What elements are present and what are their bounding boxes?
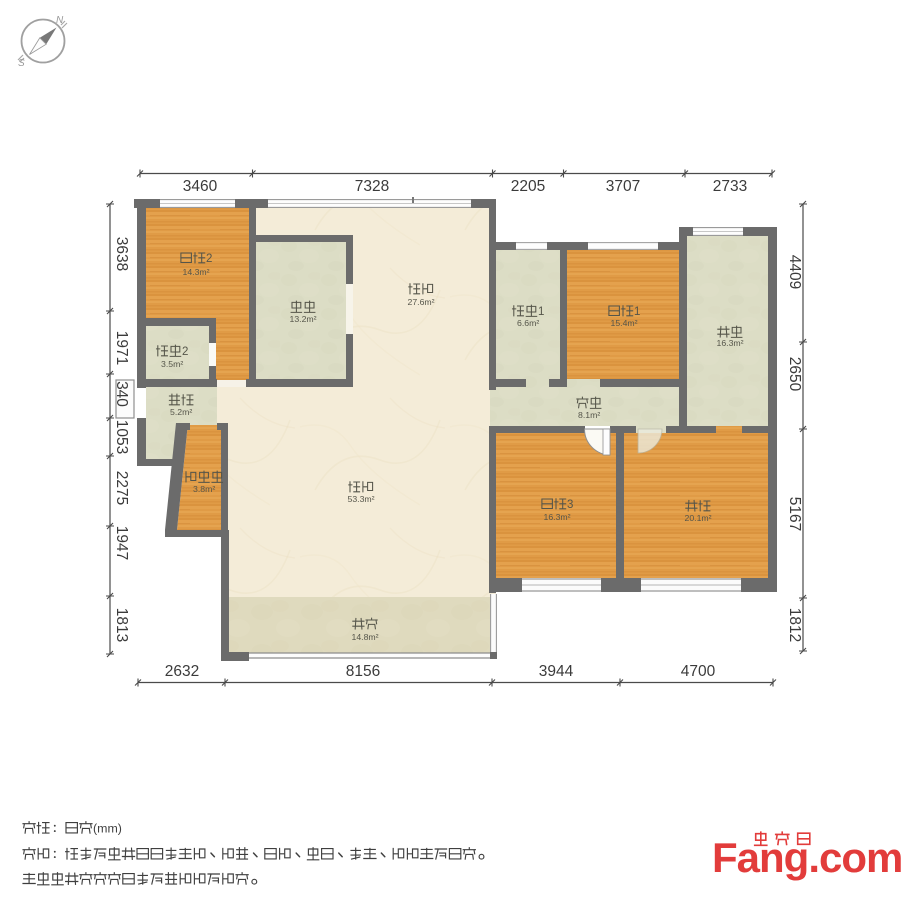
svg-text:15.4m²: 15.4m² [611, 318, 638, 328]
svg-text:1971: 1971 [113, 331, 130, 365]
svg-text:27.6m²: 27.6m² [408, 297, 435, 307]
svg-text:1: 1 [634, 306, 640, 318]
svg-text:2733: 2733 [713, 178, 747, 195]
svg-text:340: 340 [113, 381, 130, 407]
svg-text:1812: 1812 [786, 608, 803, 642]
svg-text:Fang.com: Fang.com [712, 834, 902, 881]
svg-text:1947: 1947 [113, 526, 130, 560]
svg-text:2650: 2650 [786, 357, 803, 392]
svg-text:7328: 7328 [355, 178, 389, 195]
svg-text:14.3m²: 14.3m² [183, 267, 210, 277]
svg-text:2: 2 [206, 253, 212, 265]
svg-text:2205: 2205 [511, 178, 545, 195]
svg-text:3.8m²: 3.8m² [193, 484, 215, 494]
svg-text:6.6m²: 6.6m² [517, 318, 539, 328]
svg-text:1053: 1053 [113, 420, 130, 454]
svg-text:1813: 1813 [113, 608, 130, 642]
svg-text:14.8m²: 14.8m² [352, 632, 379, 642]
svg-text:1: 1 [538, 306, 544, 318]
svg-text:13.2m²: 13.2m² [290, 314, 317, 324]
svg-text:5167: 5167 [786, 497, 803, 531]
svg-text:5.2m²: 5.2m² [170, 407, 192, 417]
svg-text:2275: 2275 [113, 471, 130, 505]
svg-text:S: S [18, 58, 25, 69]
svg-text:20.1m²: 20.1m² [685, 513, 712, 523]
svg-text:(mm): (mm) [93, 821, 122, 835]
svg-text:16.3m²: 16.3m² [544, 512, 571, 522]
svg-text:3944: 3944 [539, 663, 574, 680]
svg-text:8.1m²: 8.1m² [578, 410, 600, 420]
svg-text:2632: 2632 [165, 663, 199, 680]
svg-text:3.5m²: 3.5m² [161, 359, 183, 369]
svg-text:16.3m²: 16.3m² [717, 338, 744, 348]
svg-text:N: N [56, 15, 64, 26]
svg-text:3707: 3707 [606, 178, 640, 195]
svg-text:3638: 3638 [113, 237, 130, 271]
svg-text:2: 2 [182, 346, 188, 358]
svg-text:8156: 8156 [346, 663, 380, 680]
svg-text:3460: 3460 [183, 178, 218, 195]
svg-text:3: 3 [567, 499, 573, 511]
svg-text:53.3m²: 53.3m² [348, 494, 375, 504]
svg-text:4700: 4700 [681, 663, 716, 680]
svg-text:4409: 4409 [786, 255, 803, 289]
